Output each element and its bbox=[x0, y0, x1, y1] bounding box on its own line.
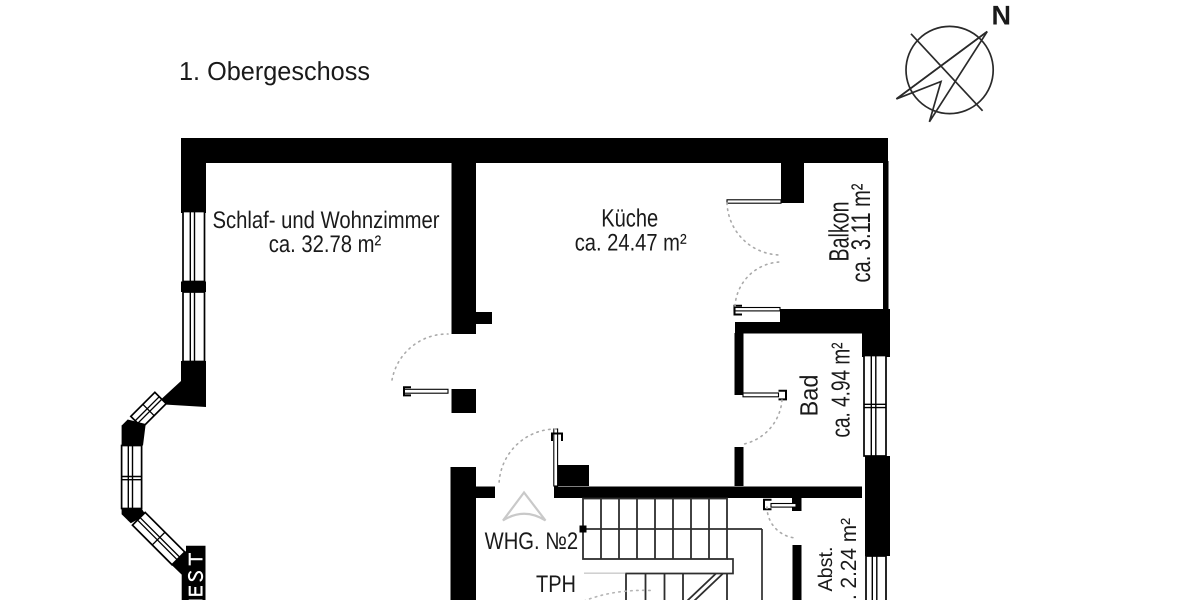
svg-text:ca. 4.94 m²: ca. 4.94 m² bbox=[826, 342, 856, 437]
svg-text:WHG. №2: WHG. №2 bbox=[485, 528, 579, 555]
svg-text:ca. 3.11 m²: ca. 3.11 m² bbox=[846, 184, 876, 283]
svg-text:1. Obergeschoss: 1. Obergeschoss bbox=[179, 56, 370, 86]
svg-text:ca. 24.47 m²: ca. 24.47 m² bbox=[575, 230, 687, 257]
svg-text:Küche: Küche bbox=[601, 205, 658, 233]
svg-text:ca. 2.24 m²: ca. 2.24 m² bbox=[836, 518, 861, 600]
svg-text:N: N bbox=[992, 1, 1012, 31]
svg-text:TPH: TPH bbox=[536, 571, 576, 598]
svg-text:ca. 32.78 m²: ca. 32.78 m² bbox=[269, 231, 382, 258]
svg-text:Schlaf- und Wohnzimmer: Schlaf- und Wohnzimmer bbox=[213, 207, 440, 234]
svg-text:Bad: Bad bbox=[796, 375, 824, 417]
svg-text:Abst.: Abst. bbox=[815, 547, 837, 592]
